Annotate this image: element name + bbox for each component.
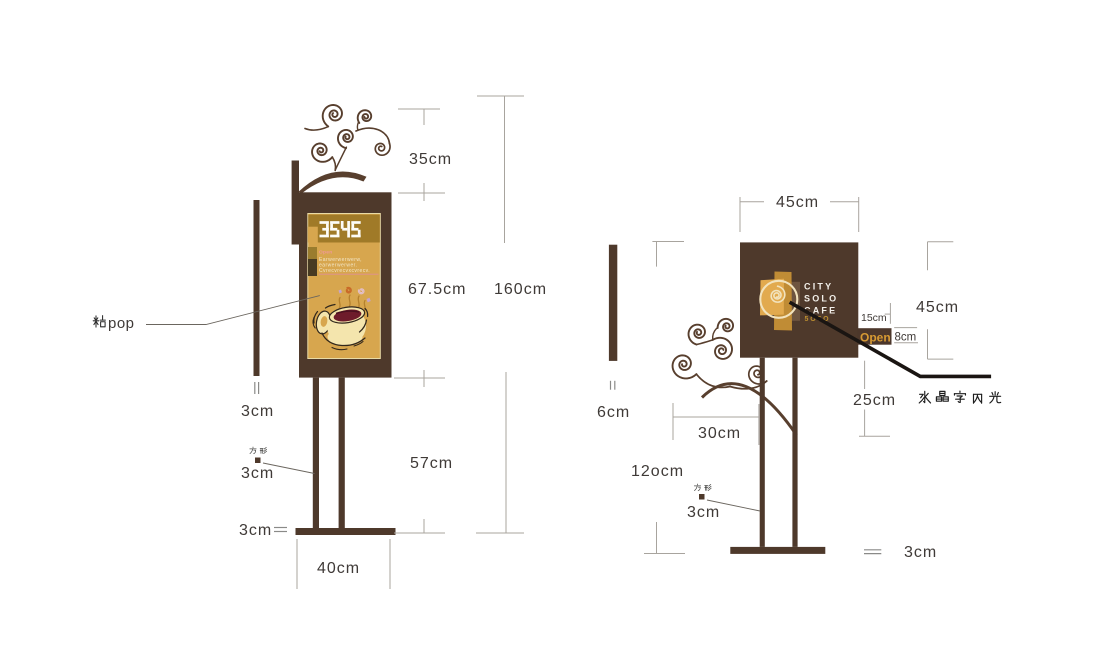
svg-text:Cvrecvrecvxcvrecv.: Cvrecvrecvxcvrecv. [319, 268, 370, 274]
svg-text:15cm: 15cm [861, 312, 887, 324]
svg-text:Open: Open [860, 331, 891, 345]
svg-text:35cm: 35cm [409, 151, 452, 168]
svg-text:3cm: 3cm [687, 504, 720, 521]
svg-text:Open: Open [319, 250, 332, 256]
svg-text:12ocm: 12ocm [631, 463, 684, 480]
svg-text:8cm: 8cm [895, 332, 917, 344]
svg-text:3cm: 3cm [904, 544, 937, 561]
svg-text:3cm: 3cm [239, 522, 272, 539]
svg-text:pop: pop [108, 315, 135, 332]
svg-text:30cm: 30cm [698, 425, 741, 442]
svg-text:3cm: 3cm [241, 465, 274, 482]
svg-text:6cm: 6cm [597, 404, 630, 421]
svg-text:CITY: CITY [804, 282, 833, 292]
svg-text:45cm: 45cm [916, 299, 959, 316]
svg-text:3cm: 3cm [241, 403, 274, 420]
svg-text:45cm: 45cm [776, 194, 819, 211]
svg-text:160cm: 160cm [494, 281, 547, 298]
svg-text:57cm: 57cm [410, 455, 453, 472]
svg-text:40cm: 40cm [317, 560, 360, 577]
svg-text:25cm: 25cm [853, 392, 896, 409]
svg-text:67.5cm: 67.5cm [408, 281, 466, 298]
svg-text:SOLO: SOLO [804, 294, 838, 304]
